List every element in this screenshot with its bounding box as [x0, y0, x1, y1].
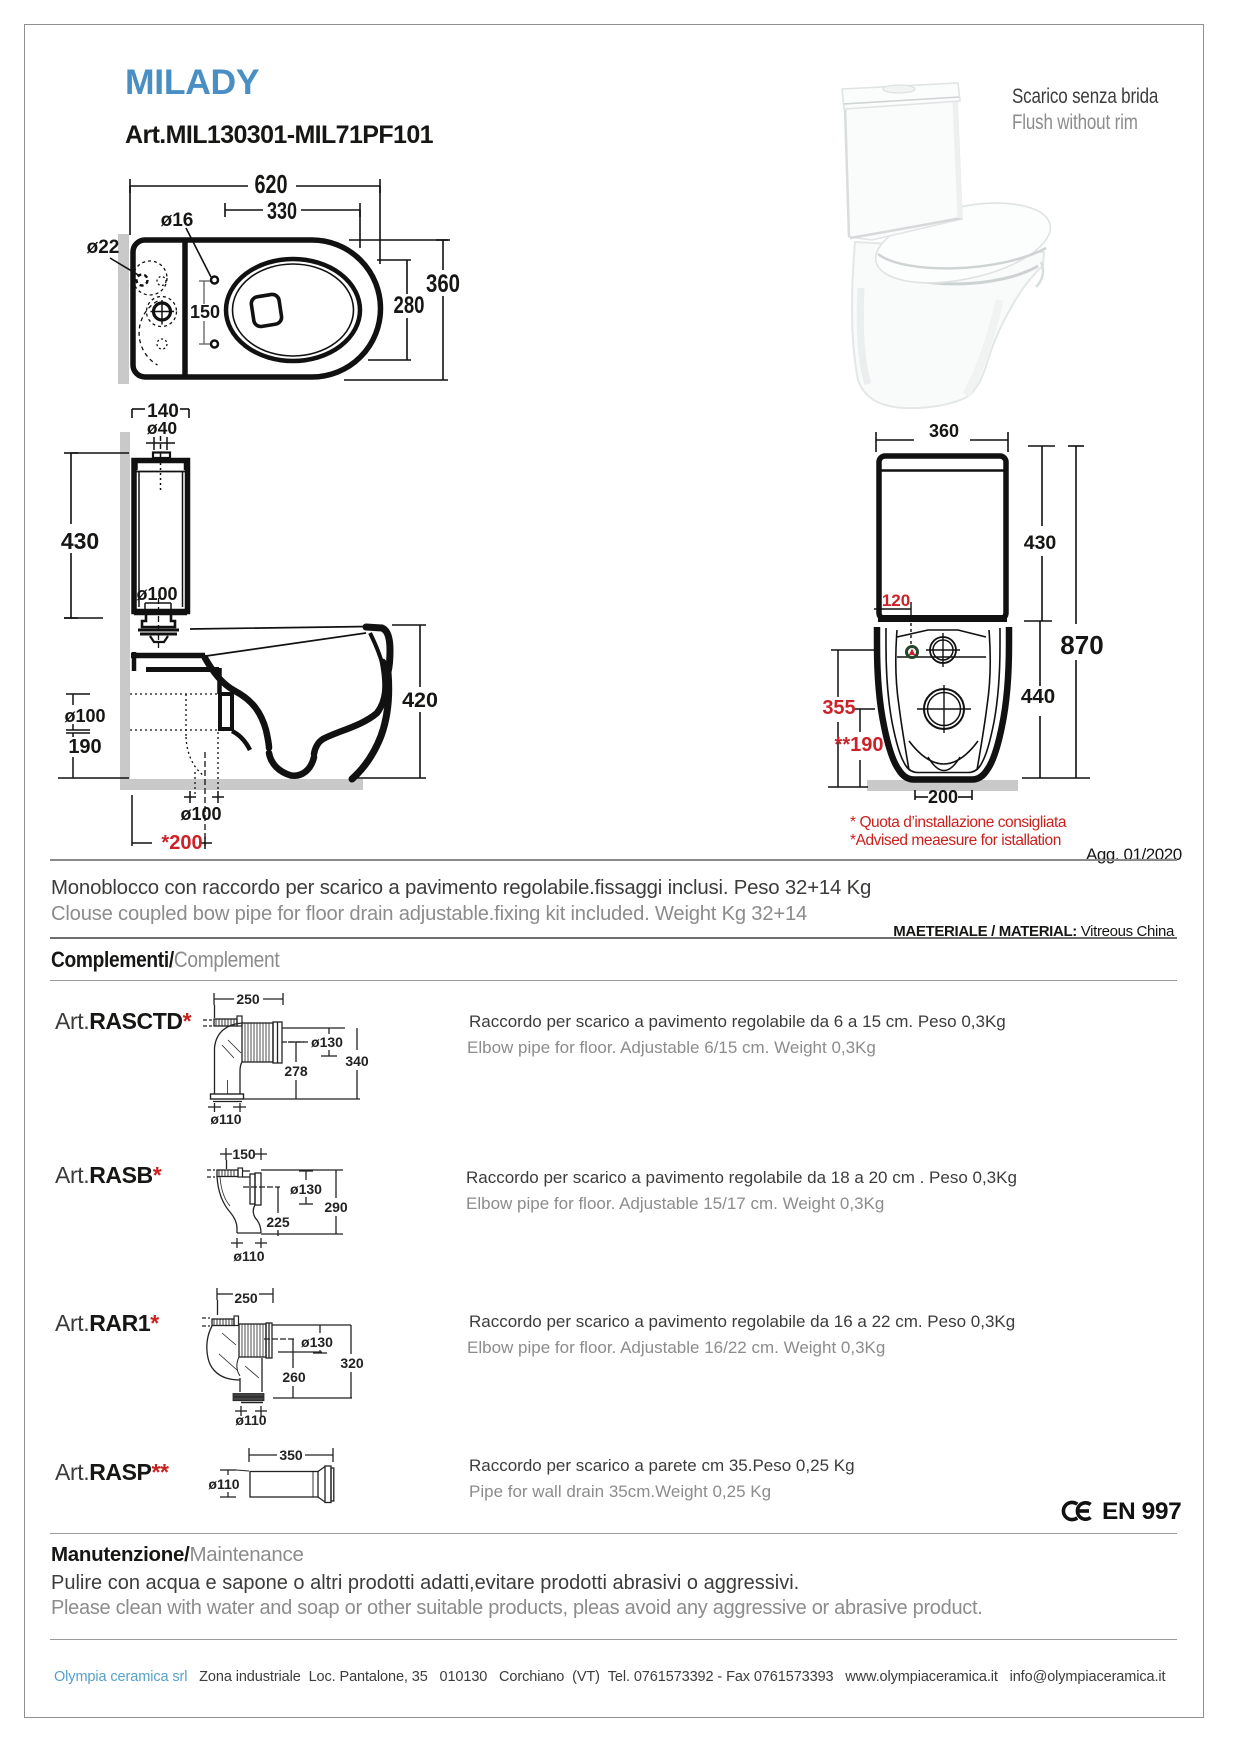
svg-text:350: 350: [279, 1447, 303, 1463]
svg-text:ø40: ø40: [147, 418, 177, 438]
svg-text:440: 440: [1021, 685, 1055, 708]
svg-text:870: 870: [1060, 630, 1103, 660]
svg-text:355: 355: [822, 697, 855, 719]
svg-text:250: 250: [234, 1290, 258, 1306]
svg-text:ø110: ø110: [210, 1111, 241, 1127]
svg-text:260: 260: [282, 1369, 306, 1385]
svg-text:340: 340: [345, 1053, 369, 1069]
svg-text:ø110: ø110: [233, 1248, 264, 1264]
svg-text:150: 150: [232, 1146, 256, 1162]
svg-text:420: 420: [402, 688, 438, 712]
svg-text:ø16: ø16: [161, 210, 194, 231]
svg-text:ø100: ø100: [180, 804, 221, 824]
svg-text:430: 430: [61, 528, 99, 554]
svg-text:250: 250: [236, 991, 260, 1007]
svg-text:620: 620: [255, 169, 288, 199]
svg-text:ø110: ø110: [208, 1476, 239, 1492]
svg-text:ø22: ø22: [87, 237, 120, 258]
svg-text:ø110: ø110: [235, 1412, 266, 1428]
svg-text:150: 150: [190, 302, 220, 322]
svg-text:190: 190: [68, 736, 101, 758]
svg-text:430: 430: [1024, 532, 1057, 554]
svg-text:200: 200: [928, 787, 958, 807]
svg-text:225: 225: [266, 1214, 290, 1230]
svg-text:280: 280: [394, 292, 425, 319]
svg-text:320: 320: [340, 1355, 364, 1371]
svg-text:ø130: ø130: [290, 1181, 322, 1197]
svg-text:*200: *200: [161, 832, 202, 854]
svg-text:330: 330: [267, 198, 297, 225]
svg-text:290: 290: [324, 1199, 348, 1215]
svg-text:ø130: ø130: [311, 1034, 343, 1050]
svg-text:**190: **190: [835, 734, 884, 756]
svg-text:120: 120: [882, 591, 910, 610]
svg-text:ø130: ø130: [301, 1334, 333, 1350]
svg-text:278: 278: [284, 1063, 308, 1079]
svg-text:360: 360: [929, 421, 959, 441]
svg-text:360: 360: [426, 270, 460, 298]
svg-text:ø100: ø100: [64, 706, 105, 726]
svg-text:ø100: ø100: [136, 584, 177, 604]
